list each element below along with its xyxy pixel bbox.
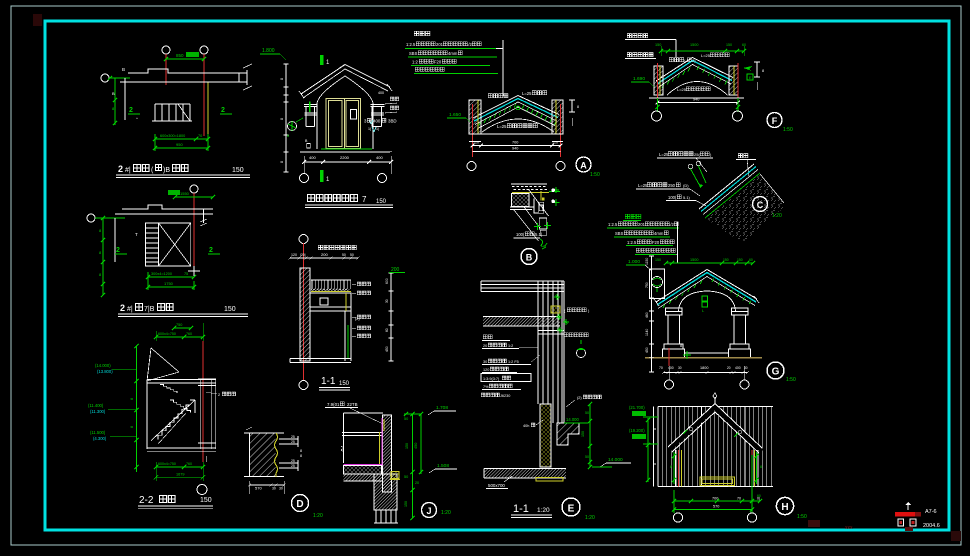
svg-text:150: 150 — [339, 381, 350, 387]
svg-text:600x300=1800: 600x300=1800 — [160, 134, 185, 138]
svg-text:(11.500): (11.500) — [90, 430, 106, 435]
svg-text:1:20: 1:20 — [585, 515, 595, 521]
svg-text:5.1): 5.1) — [535, 232, 543, 237]
svg-text:H: H — [781, 502, 788, 513]
svg-text:940: 940 — [693, 98, 699, 102]
svg-text:1.000: 1.000 — [628, 259, 640, 265]
svg-text:1140: 1140 — [645, 329, 649, 336]
svg-text:450: 450 — [385, 346, 389, 352]
svg-text:(11.400): (11.400) — [88, 403, 104, 408]
svg-text:300x4=1200: 300x4=1200 — [151, 272, 172, 276]
svg-text:400: 400 — [378, 91, 384, 95]
svg-text:100(: 100( — [668, 195, 677, 200]
svg-text:120: 120 — [483, 368, 489, 372]
svg-text:1.708: 1.708 — [436, 405, 448, 411]
svg-text:50: 50 — [404, 475, 408, 479]
svg-text:60: 60 — [749, 258, 753, 262]
svg-text:1.508: 1.508 — [437, 463, 449, 469]
svg-text:14.000: 14.000 — [608, 457, 623, 463]
svg-text:8: 8 — [760, 465, 762, 469]
svg-text:1:20: 1:20 — [537, 507, 550, 514]
svg-text:1:2: 1:2 — [508, 344, 513, 348]
svg-text:L=25: L=25 — [677, 87, 687, 92]
svg-text:25: 25 — [291, 440, 295, 444]
svg-text:(2): (2) — [355, 317, 360, 321]
svg-text:1:50: 1:50 — [786, 377, 796, 383]
svg-text:(19.200): (19.200) — [629, 428, 645, 433]
svg-text:500x700: 500x700 — [488, 483, 505, 488]
svg-text:T: T — [135, 232, 138, 237]
svg-text:B: B — [526, 253, 533, 263]
svg-text:120: 120 — [473, 141, 479, 145]
svg-text:1:2.5: 1:2.5 — [406, 42, 416, 47]
svg-text:570: 570 — [255, 486, 262, 491]
svg-text:4mm: 4mm — [654, 231, 664, 236]
svg-text:450: 450 — [645, 347, 649, 353]
svg-text:850: 850 — [176, 53, 184, 58]
svg-text:20: 20 — [483, 344, 487, 348]
svg-text:L=25: L=25 — [701, 53, 711, 58]
svg-text:5.1): 5.1) — [683, 195, 691, 200]
svg-text:8: 8 — [130, 426, 134, 428]
svg-text:150: 150 — [737, 258, 743, 262]
svg-text:A: A — [580, 161, 587, 171]
svg-text:1550: 1550 — [180, 191, 190, 196]
svg-text:#|: #| — [125, 167, 131, 174]
svg-text:J6230: J6230 — [500, 394, 510, 398]
svg-text:25: 25 — [291, 435, 295, 439]
svg-text:(D): (D) — [683, 183, 689, 188]
svg-text:8: 8 — [300, 454, 302, 458]
svg-text:1:3:9(3:7): 1:3:9(3:7) — [483, 377, 500, 381]
svg-text:7: 7 — [362, 195, 367, 204]
svg-text:2004.6: 2004.6 — [923, 523, 940, 529]
svg-text:(21.700): (21.700) — [629, 405, 645, 410]
svg-text:4mm: 4mm — [448, 51, 458, 56]
svg-text:B: B — [112, 91, 115, 96]
svg-text:1750: 1750 — [164, 281, 174, 286]
svg-text:8: 8 — [280, 161, 284, 163]
svg-text:L=25: L=25 — [497, 124, 507, 129]
svg-text:150: 150 — [376, 199, 387, 205]
svg-text:8: 8 — [670, 465, 672, 469]
svg-text:400: 400 — [373, 119, 381, 124]
svg-text:150: 150 — [404, 501, 408, 507]
svg-text:1:2: 1:2 — [412, 60, 418, 65]
svg-text:600: 600 — [385, 278, 389, 284]
svg-text:50: 50 — [585, 411, 589, 415]
svg-text:60: 60 — [385, 328, 389, 332]
svg-text:1:2.5: 1:2.5 — [627, 240, 637, 245]
svg-text:1:20: 1:20 — [313, 513, 323, 519]
svg-text:70: 70 — [659, 366, 663, 370]
svg-text:1150: 1150 — [645, 258, 649, 265]
svg-text:25: 25 — [291, 464, 295, 468]
svg-text:(14.000): (14.000) — [95, 363, 111, 368]
svg-text:760: 760 — [186, 332, 192, 336]
svg-text:25: 25 — [291, 459, 295, 463]
svg-text:8: 8 — [577, 105, 579, 109]
svg-text:30: 30 — [483, 360, 487, 364]
svg-text:940: 940 — [512, 147, 518, 151]
svg-text:2200: 2200 — [340, 155, 350, 160]
svg-text:70: 70 — [737, 497, 741, 501]
svg-text:2: 2 — [209, 247, 213, 254]
svg-text:700: 700 — [712, 497, 718, 501]
svg-text:2: 2 — [129, 107, 133, 114]
svg-text:25(: 25( — [694, 152, 700, 157]
svg-text:750: 750 — [645, 282, 649, 288]
svg-text:1-1: 1-1 — [513, 503, 529, 515]
svg-text:8: 8 — [653, 428, 657, 430]
svg-text:|20|: |20| — [300, 253, 306, 257]
svg-text:2-2: 2-2 — [139, 495, 154, 506]
svg-text:1500: 1500 — [690, 43, 698, 47]
svg-text:1:2 F5: 1:2 F5 — [508, 360, 519, 364]
svg-text:150: 150 — [655, 43, 661, 47]
svg-text:1:50: 1:50 — [797, 514, 807, 520]
svg-text:8: 8 — [680, 344, 682, 348]
svg-text:950: 950 — [176, 142, 183, 147]
svg-text:150: 150 — [655, 258, 661, 262]
svg-text:7|B: 7|B — [144, 306, 155, 313]
svg-text:8: 8 — [130, 398, 134, 400]
svg-text:1679: 1679 — [176, 473, 184, 477]
svg-text:)B: )B — [163, 167, 170, 174]
svg-text:8: 8 — [762, 69, 764, 73]
svg-text:1:2.5: 1:2.5 — [608, 222, 618, 227]
svg-text:7.9(01: 7.9(01 — [327, 402, 340, 407]
svg-text:60: 60 — [757, 494, 761, 498]
svg-text:1): 1) — [368, 127, 371, 131]
svg-text:30: 30 — [279, 487, 283, 491]
svg-text:1.650: 1.650 — [449, 112, 461, 118]
svg-text:1:20: 1:20 — [441, 510, 451, 516]
svg-text:600x4=750: 600x4=750 — [158, 332, 176, 336]
svg-text:150: 150 — [726, 43, 732, 47]
svg-text:8: 8 — [653, 463, 657, 465]
svg-text:150: 150 — [200, 497, 212, 504]
svg-text:1.690: 1.690 — [633, 76, 645, 82]
svg-text:SBS: SBS — [409, 51, 418, 56]
svg-text:460: 460 — [645, 312, 649, 318]
svg-text:(13.800): (13.800) — [97, 369, 113, 374]
svg-text:200: 200 — [321, 252, 328, 257]
svg-text:E: E — [568, 504, 575, 515]
svg-text:201: 201 — [436, 42, 444, 47]
svg-text:201: 201 — [638, 222, 646, 227]
svg-text:570: 570 — [713, 505, 719, 509]
svg-text:50: 50 — [404, 417, 408, 421]
svg-text:70: 70 — [198, 134, 202, 138]
svg-text:F: F — [772, 116, 778, 126]
svg-text:1/2: 1/2 — [668, 222, 674, 227]
svg-text:1500: 1500 — [690, 258, 698, 262]
svg-text:(4.300): (4.300) — [93, 436, 107, 441]
svg-text:2: 2 — [120, 303, 125, 313]
svg-text:L=25: L=25 — [659, 152, 669, 157]
svg-text:A7-6: A7-6 — [925, 509, 937, 515]
svg-text:600x4=750: 600x4=750 — [158, 462, 176, 466]
svg-text:8: 8 — [300, 449, 302, 453]
svg-text:1-1: 1-1 — [321, 376, 336, 387]
svg-text:100(: 100( — [516, 232, 525, 237]
svg-text:8: 8 — [280, 118, 284, 120]
svg-text:F20: F20 — [652, 240, 660, 245]
svg-text:760: 760 — [186, 462, 192, 466]
svg-text:1800: 1800 — [700, 366, 708, 370]
svg-text:2: 2 — [118, 164, 123, 174]
svg-text:30: 30 — [385, 299, 389, 303]
svg-text:L=25: L=25 — [638, 183, 648, 188]
svg-text:B: B — [122, 67, 125, 72]
svg-text:J: J — [426, 506, 431, 516]
svg-text:#|: #| — [127, 306, 133, 313]
svg-text:22TB: 22TB — [347, 402, 358, 407]
svg-text:F20: F20 — [434, 60, 442, 65]
svg-text:xxx: xxx — [845, 525, 853, 531]
svg-text:14.000: 14.000 — [566, 417, 579, 422]
svg-text:450: 450 — [414, 443, 418, 449]
svg-text:400: 400 — [735, 366, 741, 370]
svg-text:20: 20 — [727, 366, 731, 370]
svg-text:8: 8 — [280, 78, 284, 80]
svg-text:C: C — [757, 200, 764, 210]
svg-text:400: 400 — [376, 155, 383, 160]
svg-text:250: 250 — [668, 183, 676, 188]
svg-text:(2): (2) — [577, 396, 582, 400]
svg-text:150: 150 — [405, 443, 409, 449]
svg-text:2: 2 — [221, 107, 225, 114]
svg-text:3BD: 3BD — [388, 119, 397, 124]
svg-text:400: 400 — [309, 155, 316, 160]
svg-text:20: 20 — [415, 481, 419, 485]
svg-text:L=25: L=25 — [522, 91, 532, 96]
svg-text:7%: 7% — [483, 385, 489, 389]
svg-text:1:50: 1:50 — [783, 127, 793, 133]
svg-text:750: 750 — [176, 323, 182, 327]
svg-text:1:50: 1:50 — [590, 172, 600, 178]
svg-text:E: E — [749, 75, 752, 80]
svg-text:1/2: 1/2 — [466, 42, 472, 47]
svg-text:SBS: SBS — [615, 231, 624, 236]
svg-text:150: 150 — [581, 431, 585, 437]
svg-text:40h: 40h — [523, 424, 529, 428]
svg-text:75: 75 — [184, 272, 188, 276]
svg-text:1:20: 1:20 — [772, 213, 782, 219]
svg-text:150: 150 — [723, 258, 729, 262]
svg-text:120: 120 — [552, 141, 558, 145]
svg-text:50: 50 — [585, 455, 589, 459]
svg-text:2: 2 — [218, 393, 220, 397]
svg-text:150: 150 — [232, 167, 244, 174]
svg-text:30: 30 — [678, 366, 682, 370]
svg-text:700: 700 — [512, 141, 518, 145]
svg-text:^: ^ — [136, 116, 138, 121]
svg-text:1): 1) — [376, 127, 379, 131]
svg-text:50: 50 — [350, 253, 354, 257]
svg-text:(11.300): (11.300) — [90, 409, 106, 414]
svg-text:30: 30 — [272, 487, 276, 491]
svg-text:1.800: 1.800 — [262, 48, 275, 54]
svg-text:150: 150 — [224, 306, 236, 313]
svg-text:2: 2 — [116, 247, 120, 254]
svg-text:120: 120 — [291, 253, 297, 257]
svg-text:D: D — [296, 499, 303, 510]
svg-text:G: G — [772, 367, 780, 378]
